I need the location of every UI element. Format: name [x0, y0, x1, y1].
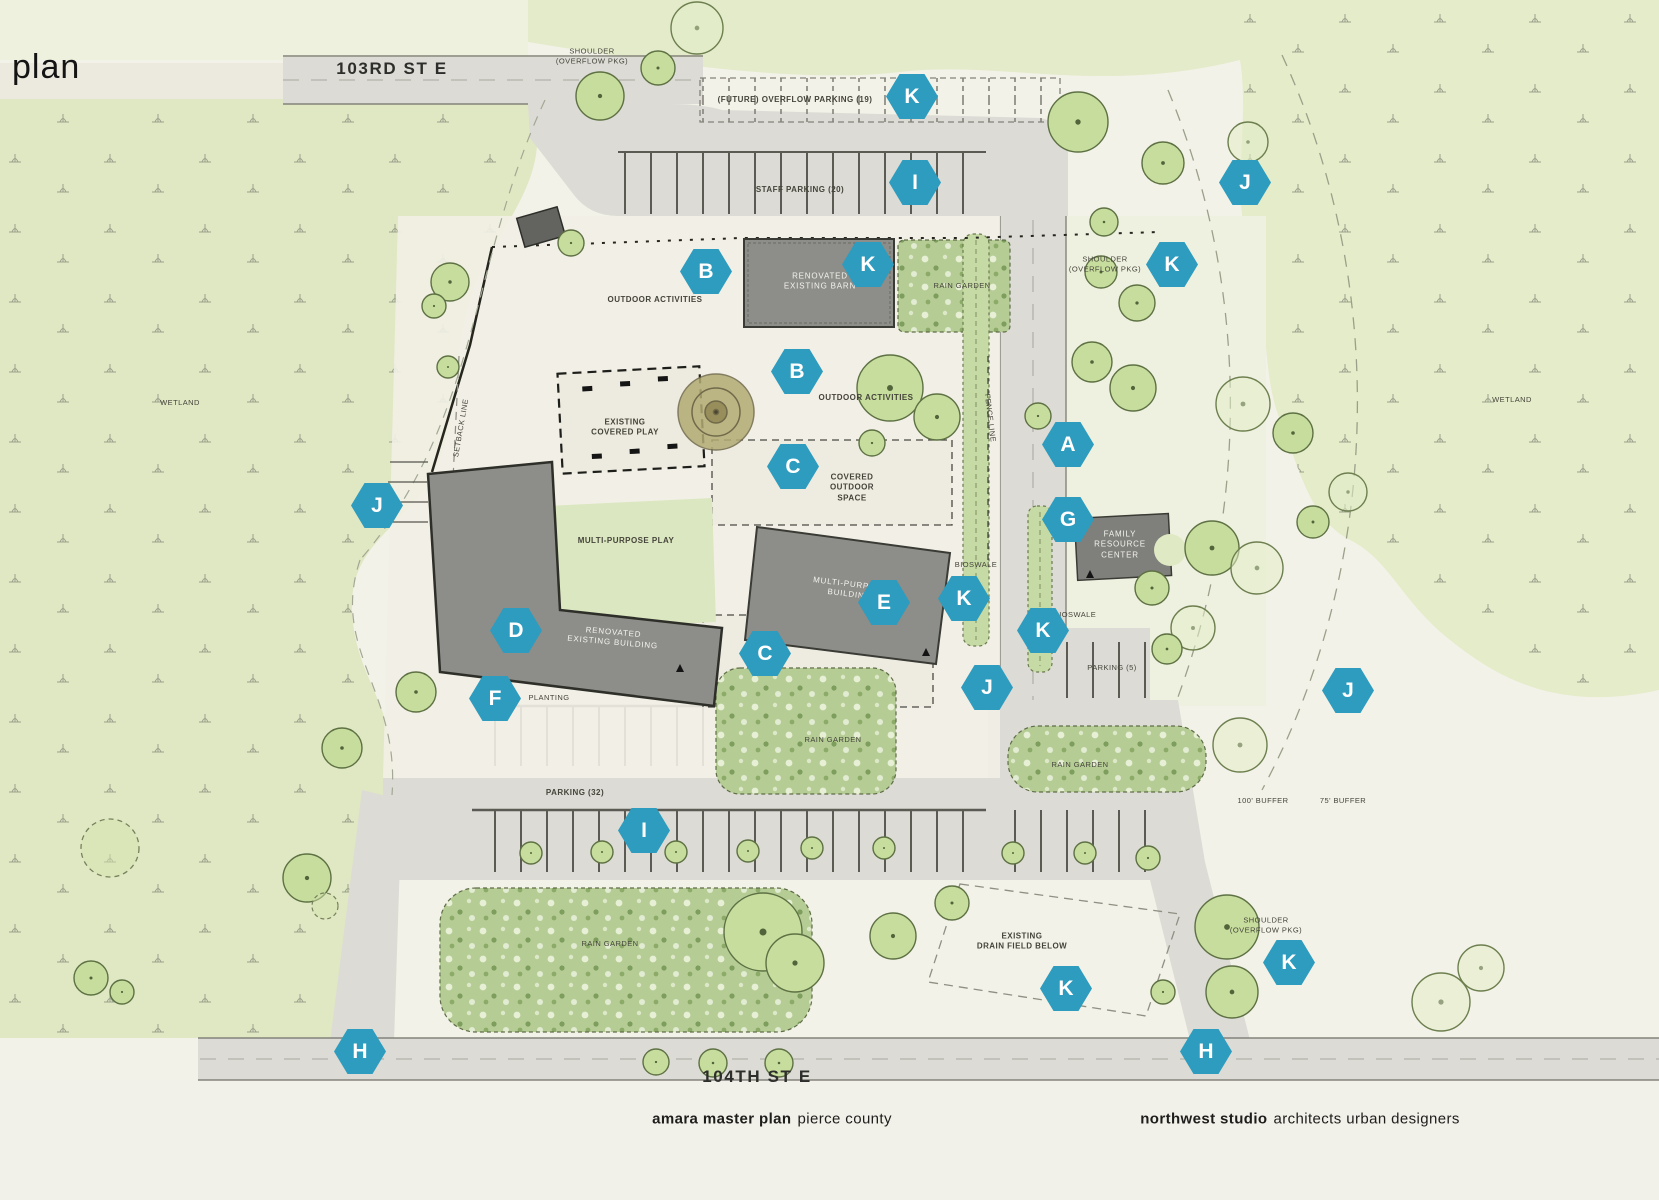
existing-covered-play: EXISTING COVERED PLAY [591, 418, 659, 439]
rain-garden-4: RAIN GARDEN [581, 939, 638, 949]
existing-tree [678, 374, 754, 450]
footer-firm-role: architects urban designers [1273, 1111, 1459, 1128]
footer-firm: northwest studioarchitects urban designe… [1140, 1111, 1460, 1128]
multi-purpose-play: MULTI-PURPOSE PLAY [578, 536, 675, 546]
buffer-100: 100' BUFFER [1238, 796, 1289, 806]
parking-32: PARKING (32) [546, 788, 604, 798]
parking-5: PARKING (5) [1087, 663, 1136, 673]
footer-project-name: amara master plan [652, 1111, 791, 1128]
shoulder-overflow-bottom: SHOULDER (OVERFLOW PKG) [1230, 915, 1302, 935]
rain-garden-3: RAIN GARDEN [1051, 760, 1108, 770]
site-plan: plan 103RD ST E104TH ST ESHOULDER (OVERF… [0, 0, 1659, 1200]
footer-firm-name: northwest studio [1140, 1111, 1267, 1128]
shoulder-overflow-top: SHOULDER (OVERFLOW PKG) [556, 46, 628, 66]
staff-parking: STAFF PARKING (20) [756, 185, 844, 195]
future-overflow-parking: (FUTURE) OVERFLOW PARKING (19) [718, 95, 873, 105]
renovated-existing-barn: RENOVATED EXISTING BARN [784, 272, 856, 293]
planting: PLANTING [528, 693, 569, 703]
street-103rd: 103RD ST E [336, 58, 447, 80]
site-plan-drawing [0, 0, 1659, 1200]
shoulder-overflow-right: SHOULDER (OVERFLOW PKG) [1069, 254, 1141, 274]
footer-project: amara master planpierce county [652, 1111, 892, 1128]
outdoor-activities-1: OUTDOOR ACTIVITIES [608, 295, 703, 305]
buffer-75: 75' BUFFER [1320, 796, 1366, 806]
street-104th: 104TH ST E [702, 1066, 812, 1088]
outdoor-activities-2: OUTDOOR ACTIVITIES [819, 393, 914, 403]
rain-garden-1: RAIN GARDEN [933, 281, 990, 291]
bioswale-1: BIOSWALE [955, 560, 998, 570]
wetland-left: WETLAND [160, 398, 200, 408]
rain-garden-2: RAIN GARDEN [804, 735, 861, 745]
family-resource-center: FAMILY RESOURCE CENTER [1094, 529, 1146, 560]
wetland-right: WETLAND [1492, 395, 1532, 405]
covered-outdoor-space-1: COVERED OUTDOOR SPACE [830, 472, 874, 503]
footer-project-county: pierce county [797, 1111, 891, 1128]
existing-drain-field: EXISTING DRAIN FIELD BELOW [977, 932, 1067, 953]
page-title: plan [12, 48, 80, 87]
